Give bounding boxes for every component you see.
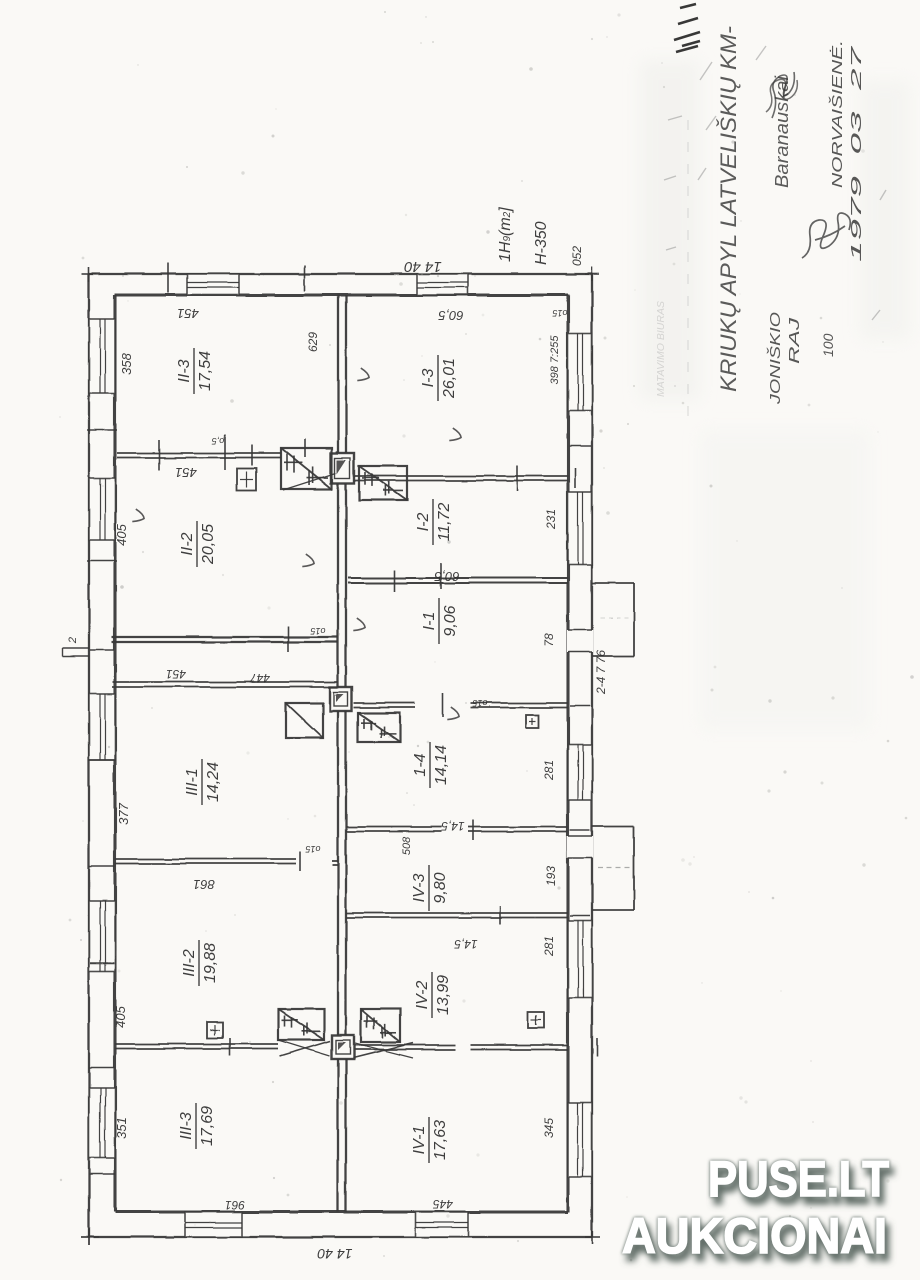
svg-text:I-3: I-3 — [420, 369, 437, 388]
svg-text:451: 451 — [175, 465, 197, 480]
svg-text:PUSE.LT: PUSE.LT — [708, 1151, 889, 1207]
svg-text:451: 451 — [166, 667, 186, 681]
svg-text:398 7:255: 398 7:255 — [549, 335, 561, 385]
svg-text:17,63: 17,63 — [432, 1120, 449, 1160]
svg-text:2: 2 — [67, 637, 79, 644]
svg-text:60,5: 60,5 — [434, 569, 460, 584]
svg-text:451: 451 — [177, 306, 199, 321]
svg-text:193: 193 — [544, 866, 558, 886]
svg-text:14 40: 14 40 — [317, 1246, 352, 1262]
svg-text:o,5: o,5 — [211, 436, 225, 446]
svg-text:III-1: III-1 — [184, 768, 201, 796]
svg-text:IV-1: IV-1 — [411, 1126, 428, 1155]
svg-text:RAJ: RAJ — [786, 317, 803, 364]
svg-text:1979 03 27: 1979 03 27 — [848, 45, 865, 262]
svg-text:IV-3: IV-3 — [411, 874, 428, 903]
svg-text:861: 861 — [193, 877, 215, 892]
svg-text:60,5: 60,5 — [438, 308, 464, 323]
svg-text:377: 377 — [116, 802, 131, 824]
svg-text:445: 445 — [433, 1197, 453, 1211]
svg-text:o15: o15 — [552, 308, 568, 318]
svg-text:I-2: I-2 — [415, 513, 432, 532]
svg-text:o15: o15 — [472, 698, 488, 708]
svg-text:o15: o15 — [310, 626, 326, 636]
svg-text:14,14: 14,14 — [433, 745, 450, 785]
svg-text:KRIUKŲ APYL LATVELIŠKIŲ KM-: KRIUKŲ APYL LATVELIŠKIŲ KM- — [716, 26, 741, 392]
svg-text:405: 405 — [113, 1005, 128, 1027]
svg-text:14,5: 14,5 — [454, 937, 478, 951]
svg-text:629: 629 — [306, 332, 320, 352]
svg-text:447: 447 — [249, 671, 270, 685]
svg-text:14,24: 14,24 — [205, 762, 222, 802]
svg-text:AUKCIONAI: AUKCIONAI — [622, 1208, 887, 1264]
svg-text:14 40: 14 40 — [404, 258, 442, 275]
svg-text:1-4: 1-4 — [412, 753, 429, 776]
svg-text:IV-2: IV-2 — [414, 981, 431, 1010]
svg-text:508: 508 — [401, 836, 413, 855]
svg-text:17,69: 17,69 — [199, 1106, 216, 1146]
svg-text:11,72: 11,72 — [436, 502, 453, 541]
svg-text:o15: o15 — [305, 844, 321, 854]
svg-text:13,99: 13,99 — [435, 975, 452, 1015]
svg-text:78: 78 — [542, 633, 556, 647]
svg-text:I-1: I-1 — [421, 612, 438, 631]
svg-text:961: 961 — [225, 1198, 245, 1212]
svg-text:II-2: II-2 — [179, 532, 196, 555]
svg-text:III-3: III-3 — [178, 1112, 195, 1140]
svg-text:17,54: 17,54 — [197, 351, 214, 391]
svg-text:NORVAIŠIENĖ.: NORVAIŠIENĖ. — [829, 40, 846, 188]
svg-text:MATAVIMO BIURAS: MATAVIMO BIURAS — [656, 301, 667, 397]
svg-text:358: 358 — [119, 352, 134, 374]
svg-text:345: 345 — [542, 1118, 556, 1138]
svg-text:19,88: 19,88 — [202, 943, 219, 983]
svg-text:14,5: 14,5 — [441, 819, 465, 833]
svg-text:26,01: 26,01 — [441, 358, 458, 399]
svg-text:405: 405 — [114, 523, 129, 545]
svg-text:351: 351 — [114, 1117, 129, 1139]
svg-text:100: 100 — [820, 333, 836, 357]
svg-text:052: 052 — [570, 246, 584, 266]
svg-text:9,06: 9,06 — [442, 605, 459, 636]
svg-text:II-3: II-3 — [176, 359, 193, 382]
svg-text:20,05: 20,05 — [200, 524, 217, 565]
svg-text:281: 281 — [542, 936, 556, 957]
svg-text:281: 281 — [542, 760, 556, 781]
svg-text:H-350: H-350 — [533, 221, 550, 265]
svg-text:9,80: 9,80 — [432, 872, 449, 903]
svg-text:III-2: III-2 — [181, 949, 198, 977]
svg-text:JONIŠKIO: JONIŠKIO — [767, 312, 784, 406]
svg-text:2-4 7 76: 2-4 7 76 — [594, 650, 608, 695]
svg-text:231: 231 — [544, 509, 558, 530]
